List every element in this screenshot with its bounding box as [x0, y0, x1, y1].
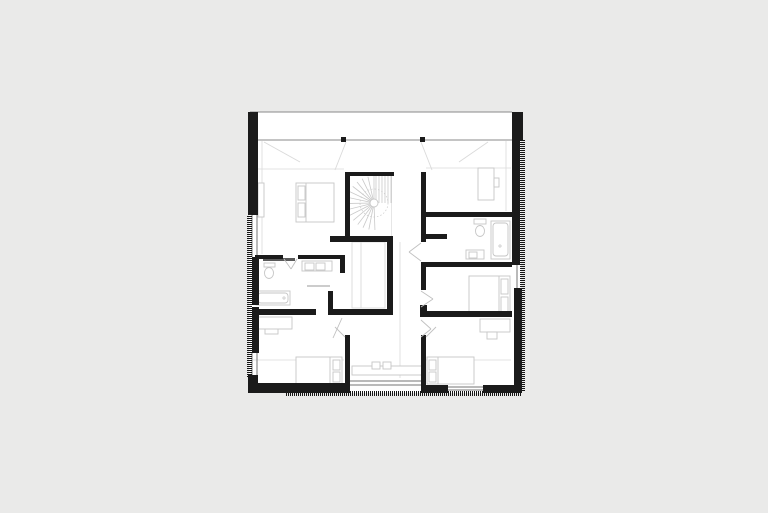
wall-segment [421, 212, 512, 217]
wall-segment [340, 255, 345, 273]
wall-segment [425, 234, 447, 239]
stair-newel [370, 199, 378, 207]
wall-segment [345, 172, 350, 237]
wall-segment [252, 257, 259, 305]
bed-pillow [333, 372, 340, 382]
bed-pillow [333, 360, 340, 370]
bathtub-inner [258, 293, 288, 303]
wall-segment [512, 140, 520, 265]
bed-pillow [429, 360, 436, 370]
toilet-bowl [476, 226, 485, 237]
wall-segment [512, 112, 523, 140]
toilet-tank [474, 219, 486, 224]
wall-segment [514, 288, 522, 387]
hatch-strip-left [247, 215, 252, 378]
page-background [0, 0, 768, 513]
wall-segment [421, 262, 512, 267]
vanity-basin [316, 263, 325, 270]
wall-segment [255, 255, 283, 259]
desk [480, 319, 510, 332]
cabinet [258, 183, 264, 217]
wall-segment [345, 172, 394, 176]
bed-pillow [298, 203, 305, 217]
sideboard-box [383, 362, 391, 369]
wall-segment [328, 291, 333, 315]
wall-segment [330, 236, 392, 242]
column [341, 137, 346, 142]
wall-segment [345, 335, 350, 393]
desk [478, 168, 494, 200]
floor-plan-drawing [0, 0, 768, 513]
toilet-bowl [265, 268, 274, 279]
wall-segment [421, 262, 426, 290]
bed-pillow [429, 372, 436, 382]
wall-segment [421, 172, 426, 242]
column [420, 137, 425, 142]
wall-segment [387, 236, 393, 315]
vanity-basin [305, 263, 314, 270]
wall-segment [298, 255, 345, 259]
bathtub-inner [493, 223, 508, 256]
wall-segment [328, 309, 393, 315]
chair [494, 178, 499, 187]
bed-pillow [501, 297, 508, 312]
chair [487, 332, 497, 339]
sink-basin [469, 252, 477, 258]
toilet-tank [264, 263, 275, 267]
bed-pillow [501, 279, 508, 294]
wall-segment [248, 112, 258, 215]
sideboard-box [372, 362, 380, 369]
wall-segment [420, 311, 512, 317]
bed-pillow [298, 186, 305, 200]
wall-segment [425, 385, 448, 393]
wall-segment [248, 383, 345, 393]
wall-segment [252, 309, 316, 315]
wall-segment [420, 305, 427, 311]
cabinet [254, 317, 292, 329]
wall-segment [421, 335, 426, 393]
